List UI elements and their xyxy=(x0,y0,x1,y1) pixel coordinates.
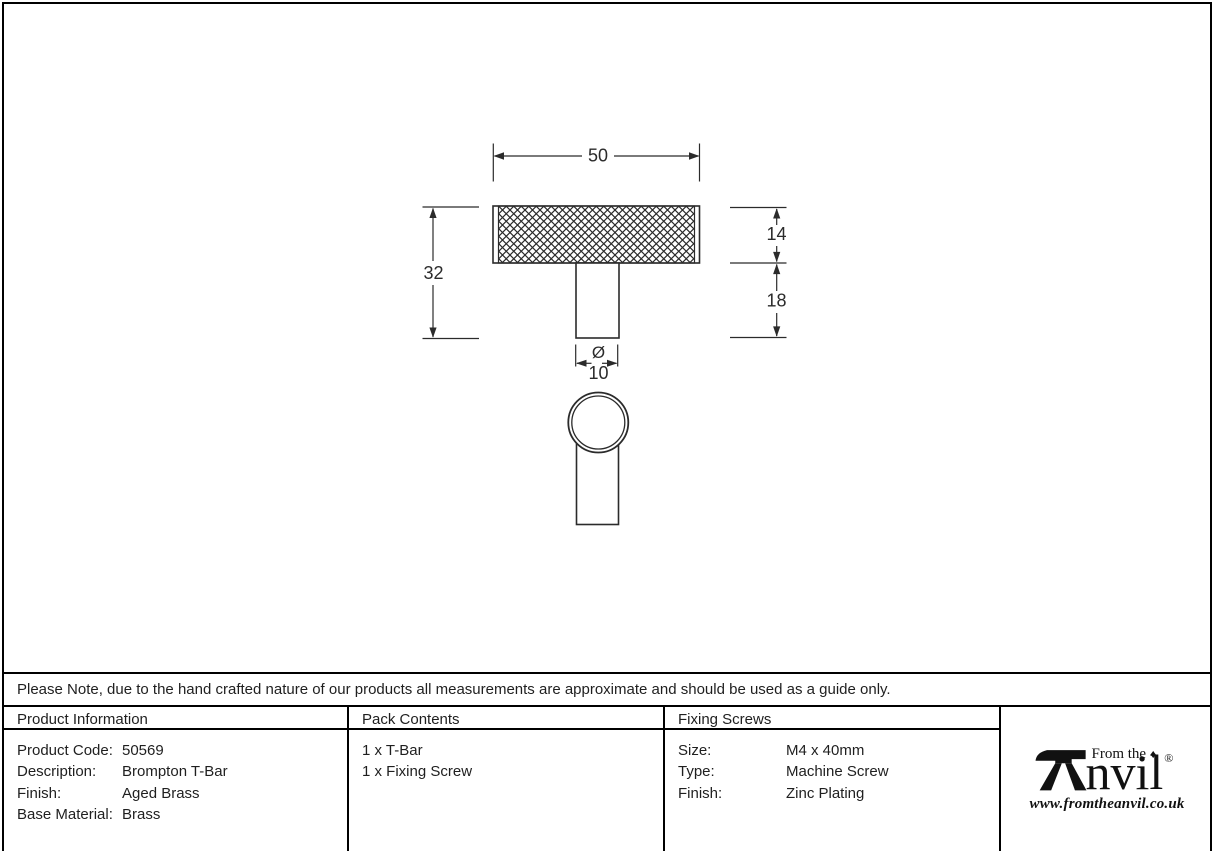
anvil-icon xyxy=(1030,746,1092,792)
dim-diameter-symbol: Ø xyxy=(592,343,605,362)
row-label: Type: xyxy=(678,761,786,782)
row-value: Machine Screw xyxy=(786,761,889,782)
note-text: Please Note, due to the hand crafted nat… xyxy=(17,681,891,698)
fixing-screws-body: Size: M4 x 40mm Type: Machine Screw Fini… xyxy=(665,730,999,804)
spec-sheet-page: 50 32 14 18 Ø 10 Please Note, due to the… xyxy=(0,0,1214,853)
dim-overall-height-label: 32 xyxy=(423,263,443,283)
table-row: Product Code: 50569 xyxy=(17,740,347,761)
row-value: M4 x 40mm xyxy=(786,740,864,761)
row-value: 50569 xyxy=(122,740,164,761)
product-information-body: Product Code: 50569 Description: Brompto… xyxy=(4,730,347,825)
row-value: Brass xyxy=(122,804,160,825)
brand-cell: From the♦ nvil® www.fromtheanvil.co.uk xyxy=(999,707,1210,851)
bottom-view xyxy=(568,393,628,525)
pack-contents-title: Pack Contents xyxy=(349,707,663,730)
info-tables: Product Information Product Code: 50569 … xyxy=(4,707,1210,851)
row-label: Description: xyxy=(17,761,122,782)
dim-diameter-label: 10 xyxy=(588,363,608,383)
row-value: Brompton T-Bar xyxy=(122,761,228,782)
row-label: Base Material: xyxy=(17,804,122,825)
brand-logo-main: From the♦ nvil® xyxy=(1030,746,1182,792)
brand-name-text: nvil xyxy=(1086,744,1164,800)
dim-stem-height-label: 18 xyxy=(766,291,786,311)
fixing-screws-title: Fixing Screws xyxy=(665,707,999,730)
table-row: Finish: Zinc Plating xyxy=(678,783,999,804)
table-row: Type: Machine Screw xyxy=(678,761,999,782)
list-item: 1 x T-Bar xyxy=(362,740,663,761)
row-label: Size: xyxy=(678,740,786,761)
note-row: Please Note, due to the hand crafted nat… xyxy=(4,672,1210,707)
row-value: Zinc Plating xyxy=(786,783,864,804)
row-label: Finish: xyxy=(17,783,122,804)
front-view xyxy=(493,206,700,338)
product-information-title: Product Information xyxy=(4,707,347,730)
list-item: 1 x Fixing Screw xyxy=(362,761,663,782)
row-label: Product Code: xyxy=(17,740,122,761)
table-row: Description: Brompton T-Bar xyxy=(17,761,347,782)
table-row: Size: M4 x 40mm xyxy=(678,740,999,761)
table-row: Base Material: Brass xyxy=(17,804,347,825)
brand-logo: From the♦ nvil® www.fromtheanvil.co.uk xyxy=(1030,746,1182,813)
brand-name: nvil® xyxy=(1086,737,1174,793)
product-information-table: Product Information Product Code: 50569 … xyxy=(4,707,347,851)
row-label: Finish: xyxy=(678,783,786,804)
dim-head-height-label: 14 xyxy=(766,224,786,244)
dim-width-label: 50 xyxy=(588,146,608,166)
table-row: Finish: Aged Brass xyxy=(17,783,347,804)
pack-contents-body: 1 x T-Bar 1 x Fixing Screw xyxy=(349,730,663,783)
registered-trademark: ® xyxy=(1164,751,1173,765)
fixing-screws-table: Fixing Screws Size: M4 x 40mm Type: Mach… xyxy=(663,707,999,851)
row-value: Aged Brass xyxy=(122,783,200,804)
technical-drawing: 50 32 14 18 Ø 10 xyxy=(0,0,1214,672)
pack-contents-table: Pack Contents 1 x T-Bar 1 x Fixing Screw xyxy=(347,707,663,851)
